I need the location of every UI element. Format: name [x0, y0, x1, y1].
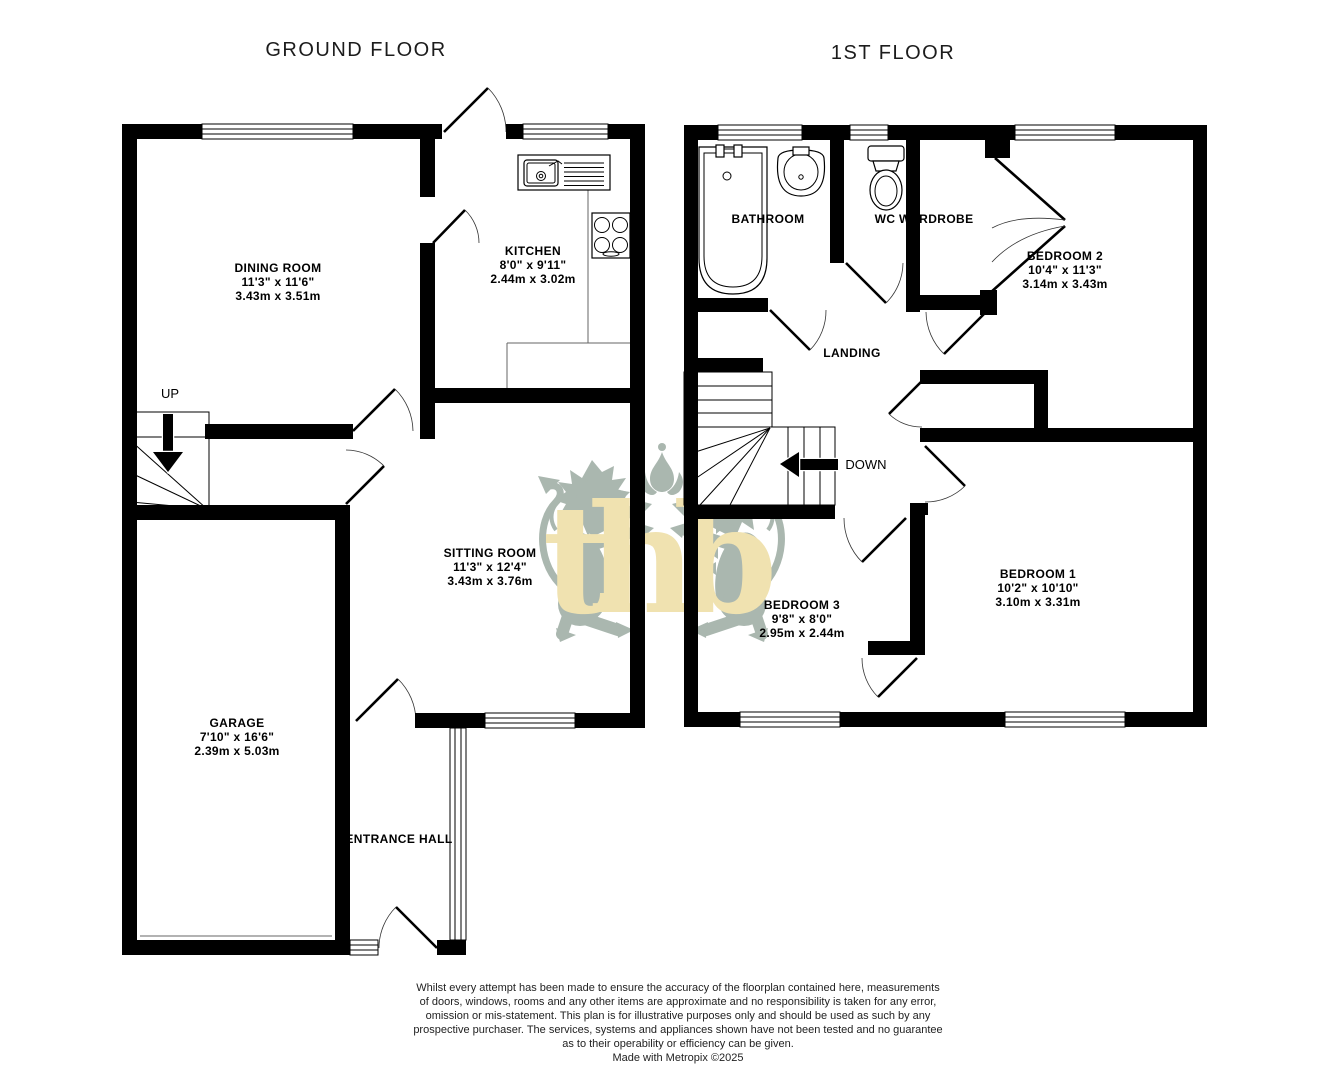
window-bedroom1: [1005, 712, 1125, 727]
stairs-down: [684, 372, 838, 505]
room-label-bedroom2: BEDROOM 2 10'4" x 11'3" 3.14m x 3.43m: [1022, 249, 1107, 291]
svg-text:omission or mis-statement. Thi: omission or mis-statement. This plan is …: [426, 1010, 931, 1022]
toilet-icon: [868, 146, 904, 210]
window-bedroom2: [1015, 125, 1115, 140]
door-bedroom1: [925, 446, 965, 502]
svg-text:Whilst every attempt has been: Whilst every attempt has been made to en…: [416, 982, 940, 994]
room-label-garage: GARAGE 7'10" x 16'6" 2.39m x 5.03m: [194, 716, 279, 758]
room-label-sitting: SITTING ROOM 11'3" x 12'4" 3.43m x 3.76m: [444, 546, 537, 588]
svg-text:as to their operability or eff: as to their operability or efficiency ca…: [562, 1038, 794, 1050]
svg-text:BEDROOM 2: BEDROOM 2: [1027, 249, 1103, 263]
svg-text:2.39m x 5.03m: 2.39m x 5.03m: [194, 744, 279, 758]
svg-text:Made with Metropix ©2025: Made with Metropix ©2025: [612, 1052, 743, 1064]
window-kitchen: [523, 124, 608, 139]
floorplan-page: thb WARDROBE: [0, 0, 1329, 1080]
svg-text:7'10" x 16'6": 7'10" x 16'6": [200, 730, 274, 744]
svg-text:11'3" x 11'6": 11'3" x 11'6": [241, 275, 314, 289]
room-label-bedroom3: BEDROOM 3 9'8" x 8'0" 2.95m x 2.44m: [759, 598, 844, 640]
door-kitchen-external: [444, 88, 506, 132]
door-wc: [846, 263, 903, 303]
door-cupboard: [889, 381, 922, 427]
svg-text:10'2" x 10'10": 10'2" x 10'10": [997, 581, 1078, 595]
door-kitchen: [433, 210, 479, 243]
door-front: [379, 907, 437, 948]
disclaimer: Whilst every attempt has been made to en…: [413, 982, 942, 1064]
svg-text:2.95m x 2.44m: 2.95m x 2.44m: [759, 626, 844, 640]
room-label-entrance: ENTRANCE HALL: [345, 832, 452, 846]
svg-text:BEDROOM 3: BEDROOM 3: [764, 598, 840, 612]
svg-text:10'4" x 11'3": 10'4" x 11'3": [1028, 263, 1102, 277]
window-sitting: [485, 713, 575, 728]
svg-text:11'3" x 12'4": 11'3" x 12'4": [453, 560, 527, 574]
door-entrance-sitting: [356, 679, 416, 721]
svg-text:3.14m x 3.43m: 3.14m x 3.43m: [1022, 277, 1107, 291]
svg-text:3.43m x 3.51m: 3.43m x 3.51m: [235, 289, 320, 303]
door-bedroom3-bottom: [862, 658, 917, 697]
door-dining-sitting: [353, 389, 413, 431]
svg-text:9'8" x 8'0": 9'8" x 8'0": [772, 612, 832, 626]
svg-text:KITCHEN: KITCHEN: [505, 244, 561, 258]
door-bedroom2: [926, 312, 986, 354]
svg-text:3.10m x 3.31m: 3.10m x 3.31m: [995, 595, 1080, 609]
stairs-up: [131, 412, 209, 512]
up-label: UP: [161, 386, 179, 401]
room-label-landing: LANDING: [823, 346, 880, 360]
window-wc: [850, 125, 888, 140]
svg-text:prospective purchaser. The ser: prospective purchaser. The services, sys…: [413, 1024, 942, 1036]
window-bedroom3: [740, 712, 840, 727]
kitchen-sink-icon: [518, 155, 610, 190]
ground-floor-title: GROUND FLOOR: [265, 39, 446, 61]
window-entrance-threshold: [350, 940, 378, 955]
window-dining: [202, 124, 353, 139]
room-label-bathroom: BATHROOM: [732, 212, 805, 226]
hob-icon: [592, 213, 630, 258]
basin-icon: [777, 147, 824, 196]
down-label: DOWN: [845, 457, 886, 472]
svg-text:2.44m x 3.02m: 2.44m x 3.02m: [490, 272, 575, 286]
svg-text:GARAGE: GARAGE: [209, 716, 264, 730]
door-bedroom3-top: [844, 518, 906, 562]
room-label-bedroom1: BEDROOM 1 10'2" x 10'10" 3.10m x 3.31m: [995, 567, 1080, 609]
window-bathroom: [718, 125, 802, 140]
svg-text:SITTING ROOM: SITTING ROOM: [444, 546, 537, 560]
first-floor-title: 1ST FLOOR: [831, 42, 955, 64]
door-bathroom: [770, 310, 826, 350]
room-label-kitchen: KITCHEN 8'0" x 9'11" 2.44m x 3.02m: [490, 244, 575, 286]
door-hall-sitting: [346, 450, 384, 504]
svg-text:of doors, windows, rooms and a: of doors, windows, rooms and any other i…: [420, 996, 937, 1008]
room-label-dining: DINING ROOM 11'3" x 11'6" 3.43m x 3.51m: [234, 261, 321, 303]
svg-text:BEDROOM 1: BEDROOM 1: [1000, 567, 1076, 581]
svg-text:DINING ROOM: DINING ROOM: [234, 261, 321, 275]
svg-text:3.43m x 3.76m: 3.43m x 3.76m: [447, 574, 532, 588]
svg-text:8'0" x 9'11": 8'0" x 9'11": [500, 258, 567, 272]
room-label-wc: WC: [875, 212, 896, 226]
